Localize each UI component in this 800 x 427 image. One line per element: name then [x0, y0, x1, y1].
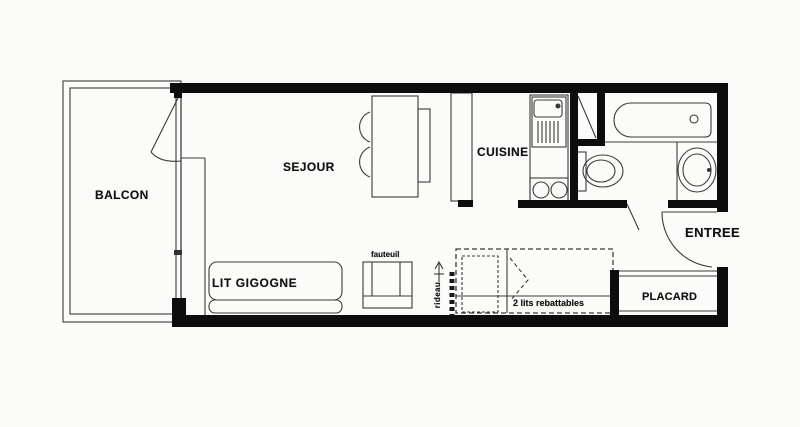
partition-wall [451, 93, 472, 201]
wall-kitchen-bath-divider [570, 93, 578, 207]
dining-table [372, 96, 430, 197]
wall-closet-left [610, 270, 619, 315]
furniture-label-fauteuil: fauteuil [371, 251, 399, 259]
window-left [176, 93, 205, 315]
bathtub [614, 103, 711, 137]
room-label-entree: ENTREE [685, 226, 740, 239]
annotation-label-rideau: rideau [434, 277, 442, 313]
shower-diagonal [578, 96, 596, 138]
chair-arcs [360, 112, 370, 177]
toilet [576, 152, 623, 191]
furniture-label-lits-rebattables: 2 lits rebattables [513, 299, 584, 308]
window-joint-mid [174, 250, 182, 255]
cooktop [530, 178, 568, 203]
room-label-balcon: BALCON [95, 189, 149, 201]
partition-end-cap [458, 200, 473, 207]
wall-top [170, 83, 728, 93]
wall-shower-right [597, 93, 605, 143]
room-label-cuisine: CUISINE [477, 146, 528, 158]
armchair [363, 262, 412, 308]
floor-plan-drawing [0, 0, 800, 427]
bathroom-door [627, 204, 639, 230]
wall-bottom [172, 315, 728, 327]
wall-right-upper [717, 83, 728, 212]
furniture-label-lit-gigogne: LIT GIGOGNE [212, 277, 297, 289]
room-label-sejour: SEJOUR [283, 161, 335, 173]
window-joint-top [174, 93, 182, 98]
washbasin [678, 148, 716, 192]
floor-plan: BALCON SEJOUR CUISINE ENTREE PLACARD LIT… [0, 0, 800, 427]
room-label-placard: PLACARD [642, 292, 697, 303]
wall-corner-left [172, 298, 186, 315]
wall-shower-bottom [570, 139, 605, 146]
kitchen-sink [534, 100, 562, 143]
wall-bath-bottom [668, 200, 717, 208]
